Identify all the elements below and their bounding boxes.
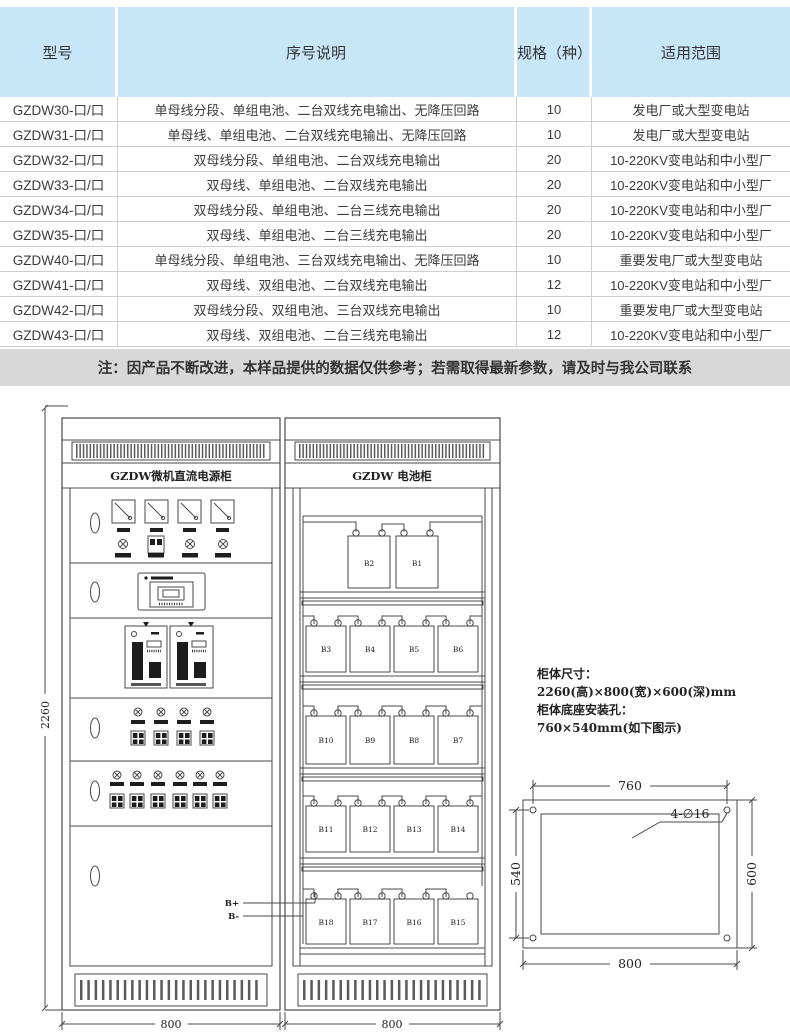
- mount-dim-right: 600: [744, 862, 759, 886]
- desc-cell: 双母线分段、单组电池、二台双线充电输出: [118, 147, 517, 171]
- table-row: GZDW42-口/口 双母线分段、双组电池、三台双线充电输出 10 重要发电厂或…: [0, 297, 790, 322]
- battery-label: B15: [450, 918, 465, 927]
- table-row: GZDW41-口/口 双母线、双组电池、二台双线充电输出 12 10-220KV…: [0, 272, 790, 297]
- dim-width-left: 800: [161, 1018, 182, 1031]
- desc-cell: 双母线分段、单组电池、二台三线充电输出: [118, 197, 517, 221]
- indicator-knob-icon: [115, 540, 131, 558]
- monitor-module: [138, 573, 205, 610]
- model-cell: GZDW32-口/口: [0, 147, 118, 171]
- desc-cell: 双母线、双组电池、二台双线充电输出: [118, 272, 517, 296]
- battery-label: B8: [409, 736, 420, 745]
- analog-meter-icon: [112, 500, 135, 532]
- battery-label: B1: [412, 559, 422, 568]
- dim-height: 2260: [39, 701, 52, 729]
- table-row: GZDW32-口/口 双母线分段、单组电池、二台双线充电输出 20 10-220…: [0, 147, 790, 172]
- charger-modules: [125, 622, 213, 688]
- battery-label: B4: [365, 645, 376, 654]
- battery-shelf: B3 B4 B5 B6: [300, 616, 485, 689]
- desc-cell: 单母线分段、单组电池、二台双线充电输出、无降压回路: [118, 97, 517, 121]
- desc-cell: 双母线分段、双组电池、三台双线充电输出: [118, 297, 517, 321]
- range-cell: 10-220KV变电站和中小型厂: [592, 197, 790, 221]
- model-cell: GZDW41-口/口: [0, 272, 118, 296]
- battery-label: B7: [453, 736, 464, 745]
- battery-cabinet: GZDW 电池柜 B2 B1: [285, 418, 500, 1010]
- spec-cell: 10: [517, 122, 592, 146]
- battery-label: B3: [321, 645, 332, 654]
- datasheet-page: 型号 序号说明 规格（种） 适用范围 GZDW30-口/口 单母线分段、单组电池…: [0, 0, 790, 1036]
- table-row: GZDW43-口/口 双母线、双组电池、二台三线充电输出 12 10-220KV…: [0, 322, 790, 347]
- spec-table: 型号 序号说明 规格（种） 适用范围 GZDW30-口/口 单母线分段、单组电池…: [0, 7, 790, 347]
- feeder-unit-icon: [110, 771, 124, 808]
- battery-shelf: B18 B17 B16 B15: [300, 889, 485, 954]
- model-cell: GZDW42-口/口: [0, 297, 118, 321]
- mount-dim-top: 760: [618, 778, 642, 793]
- spec-cell: 10: [517, 297, 592, 321]
- charger-module-icon: [170, 626, 213, 688]
- analog-meter-icon: [211, 500, 234, 532]
- cabinet-drawing: GZDW微机直流电源柜: [0, 386, 790, 1036]
- model-cell: GZDW31-口/口: [0, 122, 118, 146]
- spec-cell: 10: [517, 97, 592, 121]
- spec-cell: 20: [517, 172, 592, 196]
- feeder-unit-icon: [193, 771, 207, 808]
- specs-line: 柜体尺寸：: [536, 666, 597, 681]
- mounting-diagram: 760 800 540 600 4-∅16: [508, 778, 759, 971]
- note-text: 注：因产品不断改进，本样品提供的数据仅供参考；若需取得最新参数，请及时与我公司联…: [98, 357, 693, 378]
- analog-meter-icon: [178, 500, 201, 532]
- meter-panel: [112, 500, 234, 558]
- battery-label: B5: [409, 645, 420, 654]
- terminal-pos-label: B+: [225, 899, 239, 909]
- mount-dim-bottom: 800: [618, 956, 642, 971]
- battery-label: B18: [318, 918, 333, 927]
- range-cell: 10-220KV变电站和中小型厂: [592, 147, 790, 171]
- feeder-unit-icon: [173, 771, 187, 808]
- feeder-unit-icon: [130, 771, 144, 808]
- battery-label: B11: [318, 825, 333, 834]
- table-row: GZDW31-口/口 单母线、单组电池、二台双线充电输出、无降压回路 10 发电…: [0, 122, 790, 147]
- model-cell: GZDW30-口/口: [0, 97, 118, 121]
- range-cell: 10-220KV变电站和中小型厂: [592, 222, 790, 246]
- feeder-unit-icon: [151, 771, 165, 808]
- range-cell: 10-220KV变电站和中小型厂: [592, 172, 790, 196]
- indicator-knob-icon: [182, 540, 198, 558]
- power-cabinet-title: GZDW微机直流电源柜: [110, 469, 232, 483]
- terminal-links: B+ B-: [225, 892, 315, 922]
- double-switch-icon: [148, 536, 164, 558]
- spec-cell: 12: [517, 272, 592, 296]
- desc-cell: 双母线、单组电池、二台双线充电输出: [118, 172, 517, 196]
- feeder-panel-6: [110, 771, 227, 808]
- range-cell: 发电厂或大型变电站: [592, 122, 790, 146]
- specs-text: 柜体尺寸： 2260(高)×800(宽)×600(深)mm 柜体底座安装孔： 7…: [536, 666, 736, 735]
- specs-line: 2260(高)×800(宽)×600(深)mm: [537, 684, 736, 699]
- battery-shelf: B10 B9 B8 B7: [300, 706, 485, 781]
- cabinet-dimensions: 2260 800 800: [39, 405, 503, 1031]
- range-cell: 重要发电厂或大型变电站: [592, 247, 790, 271]
- header-range: 适用范围: [592, 7, 790, 97]
- indicator-knob-icon: [215, 540, 231, 558]
- battery-label: B9: [365, 736, 376, 745]
- model-cell: GZDW40-口/口: [0, 247, 118, 271]
- table-row: GZDW33-口/口 双母线、单组电池、二台双线充电输出 20 10-220KV…: [0, 172, 790, 197]
- spec-cell: 20: [517, 222, 592, 246]
- desc-cell: 单母线、单组电池、二台双线充电输出、无降压回路: [118, 122, 517, 146]
- mount-dim-left: 540: [508, 862, 523, 886]
- battery-shelf: B2 B1: [300, 522, 485, 605]
- feeder-unit-icon: [177, 708, 191, 745]
- desc-cell: 双母线、双组电池、二台三线充电输出: [118, 322, 517, 346]
- charger-module-icon: [125, 626, 167, 688]
- feeder-panel-4: [131, 708, 214, 745]
- table-row: GZDW35-口/口 双母线、单组电池、二台三线充电输出 20 10-220KV…: [0, 222, 790, 247]
- battery-wiring: [303, 516, 482, 944]
- specs-line: 柜体底座安装孔：: [536, 702, 633, 717]
- battery-label: B13: [406, 825, 421, 834]
- desc-cell: 双母线、单组电池、二台三线充电输出: [118, 222, 517, 246]
- range-cell: 10-220KV变电站和中小型厂: [592, 272, 790, 296]
- door-handles: [91, 513, 100, 886]
- header-model: 型号: [0, 7, 118, 97]
- header-description: 序号说明: [118, 7, 517, 97]
- dim-width-right: 800: [382, 1018, 403, 1031]
- feeder-unit-icon: [200, 708, 214, 745]
- table-row: GZDW40-口/口 单母线分段、单组电池、三台双线充电输出、无降压回路 10 …: [0, 247, 790, 272]
- model-cell: GZDW33-口/口: [0, 172, 118, 196]
- feeder-unit-icon: [154, 708, 168, 745]
- battery-label: B6: [453, 645, 464, 654]
- battery-label: B2: [364, 559, 375, 568]
- desc-cell: 单母线分段、单组电池、三台双线充电输出、无降压回路: [118, 247, 517, 271]
- feeder-unit-icon: [213, 771, 227, 808]
- mount-hole-label: 4-∅16: [671, 806, 710, 821]
- range-cell: 10-220KV变电站和中小型厂: [592, 322, 790, 346]
- power-cabinet: GZDW微机直流电源柜: [62, 418, 280, 1010]
- spec-cell: 10: [517, 247, 592, 271]
- battery-label: B10: [318, 736, 333, 745]
- table-header-row: 型号 序号说明 规格（种） 适用范围: [0, 7, 790, 97]
- battery-cabinet-title: GZDW 电池柜: [352, 469, 432, 483]
- spec-cell: 20: [517, 197, 592, 221]
- battery-shelf: B11 B12 B13 B14: [300, 796, 485, 871]
- table-row: GZDW34-口/口 双母线分段、单组电池、二台三线充电输出 20 10-220…: [0, 197, 790, 222]
- battery-label: B12: [362, 825, 377, 834]
- feeder-unit-icon: [131, 708, 145, 745]
- battery-label: B14: [450, 825, 465, 834]
- battery-label: B16: [406, 918, 421, 927]
- spec-cell: 12: [517, 322, 592, 346]
- spec-cell: 20: [517, 147, 592, 171]
- table-row: GZDW30-口/口 单母线分段、单组电池、二台双线充电输出、无降压回路 10 …: [0, 97, 790, 122]
- specs-line: 760×540mm(如下图示): [537, 720, 682, 735]
- header-spec: 规格（种）: [517, 7, 592, 97]
- model-cell: GZDW34-口/口: [0, 197, 118, 221]
- terminal-neg-label: B-: [228, 912, 239, 922]
- battery-label: B17: [362, 918, 377, 927]
- model-cell: GZDW43-口/口: [0, 322, 118, 346]
- analog-meter-icon: [145, 500, 168, 532]
- note-bar: 注：因产品不断改进，本样品提供的数据仅供参考；若需取得最新参数，请及时与我公司联…: [0, 349, 790, 386]
- range-cell: 发电厂或大型变电站: [592, 97, 790, 121]
- model-cell: GZDW35-口/口: [0, 222, 118, 246]
- range-cell: 重要发电厂或大型变电站: [592, 297, 790, 321]
